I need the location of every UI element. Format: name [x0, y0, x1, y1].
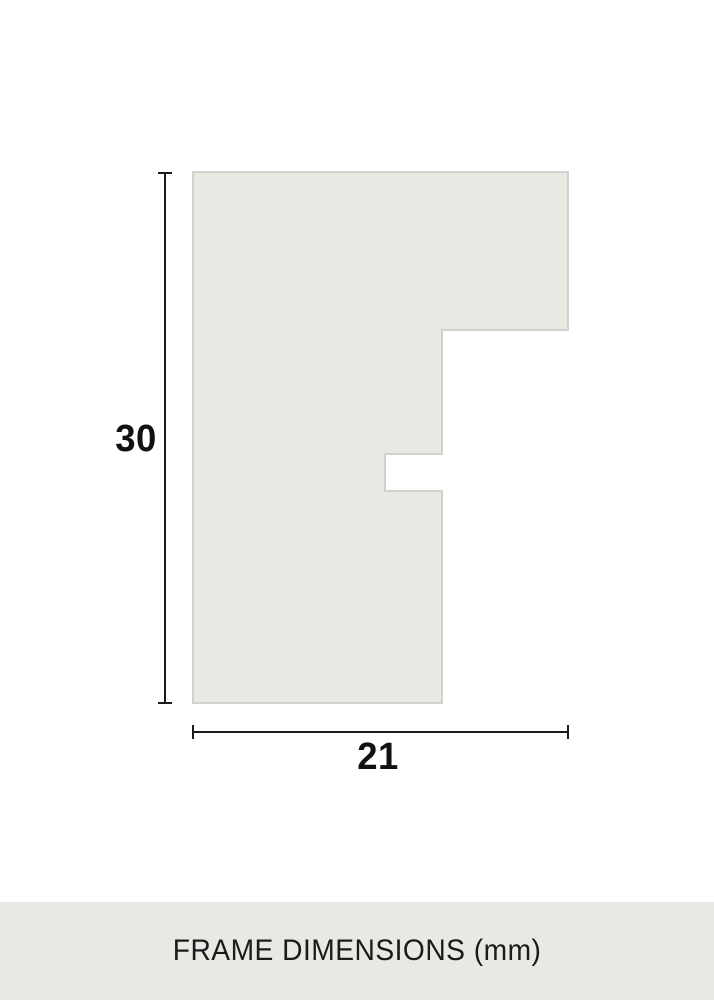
frame-dimensions-page: 30 21 FRAME DIMENSIONS (mm) — [0, 0, 714, 1000]
height-dimension-label: 30 — [105, 413, 166, 465]
footer-caption: FRAME DIMENSIONS (mm) — [173, 934, 542, 968]
width-dimension-label: 21 — [347, 731, 408, 783]
frame-cross-section-shape — [193, 172, 568, 703]
footer-caption-bar: FRAME DIMENSIONS (mm) — [0, 902, 714, 1000]
frame-profile-diagram — [0, 0, 714, 1000]
